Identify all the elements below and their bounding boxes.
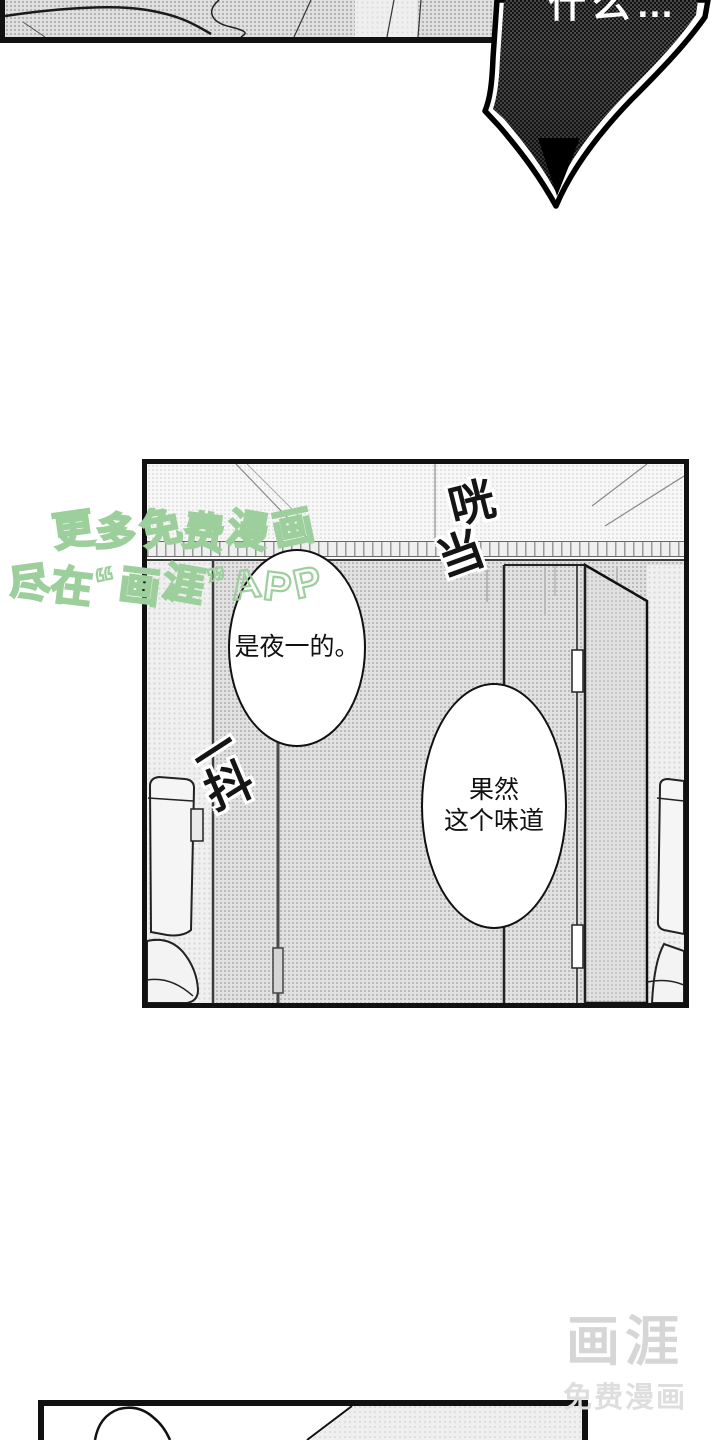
speech-bubble-2-text: 果然 这个味道 xyxy=(444,775,544,838)
sfx-shake: 一抖 xyxy=(193,730,240,821)
dark-bubble-text-clip: 什么… xyxy=(520,0,705,40)
speech-bubble-2-line2: 这个味道 xyxy=(444,806,544,837)
watermark-line2: 尽在“画涯”APP xyxy=(8,550,324,610)
app-logo-subtitle: 免费漫画 xyxy=(556,1374,694,1416)
comic-page: 什么… xyxy=(0,0,720,1440)
dark-bubble-text: 什么… xyxy=(548,0,680,28)
watermark-line1: 更多免费漫画 xyxy=(52,496,316,556)
app-logo-title: 画涯 xyxy=(556,1314,694,1371)
bottom-panel-linework xyxy=(44,1406,582,1440)
top-panel xyxy=(0,0,508,43)
speech-bubble-2: 果然 这个味道 xyxy=(421,683,567,929)
speech-bubble-1-text: 是夜一的。 xyxy=(234,632,359,663)
app-logo: 画涯 免费漫画 xyxy=(556,1314,694,1416)
top-panel-linework xyxy=(5,0,508,37)
right-toilet xyxy=(647,779,684,1003)
speech-bubble-2-line1: 果然 xyxy=(444,775,544,806)
bottom-panel xyxy=(38,1400,588,1440)
sfx-clatter: 咣当 xyxy=(449,480,495,574)
